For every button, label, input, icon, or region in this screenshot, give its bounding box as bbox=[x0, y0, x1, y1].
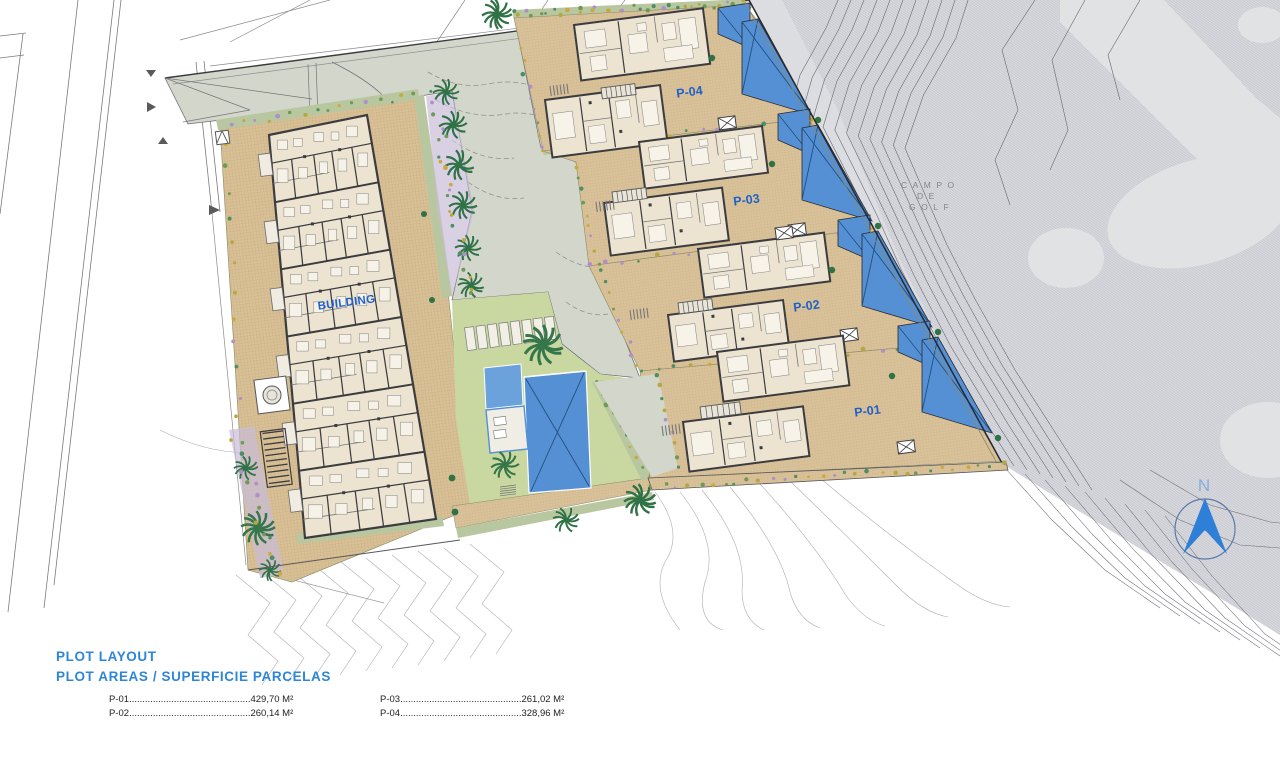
svg-text:DE: DE bbox=[917, 191, 940, 201]
svg-text:GOLF: GOLF bbox=[909, 202, 954, 212]
svg-text:CAMPO: CAMPO bbox=[901, 180, 960, 190]
svg-text:P-01..........................: P-01....................................… bbox=[109, 694, 293, 705]
svg-text:P-04..........................: P-04....................................… bbox=[380, 708, 564, 719]
svg-text:P-03..........................: P-03....................................… bbox=[380, 694, 564, 705]
svg-text:N: N bbox=[1198, 476, 1210, 495]
svg-text:PLOT AREAS / SUPERFICIE PARCEL: PLOT AREAS / SUPERFICIE PARCELAS bbox=[56, 669, 331, 684]
svg-text:PLOT LAYOUT: PLOT LAYOUT bbox=[56, 649, 157, 664]
svg-text:P-02..........................: P-02....................................… bbox=[109, 708, 293, 719]
